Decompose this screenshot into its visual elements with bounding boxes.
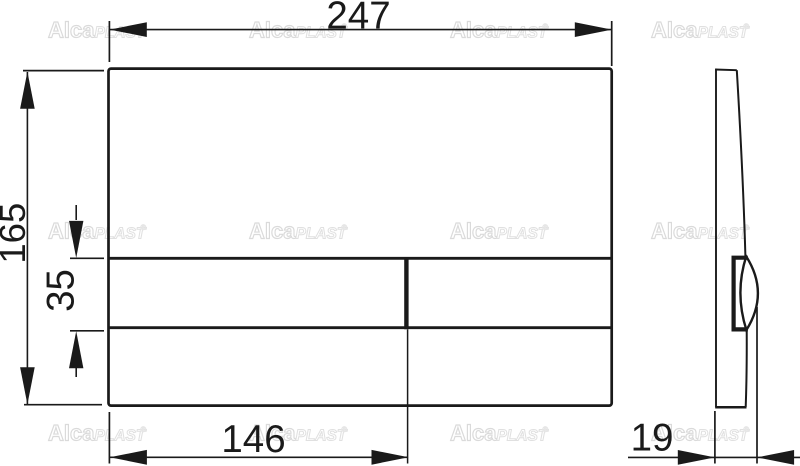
svg-text:146: 146 [221, 418, 285, 461]
svg-text:247: 247 [326, 0, 390, 37]
svg-text:165: 165 [0, 203, 33, 264]
svg-text:35: 35 [39, 269, 82, 312]
svg-text:19: 19 [631, 417, 674, 460]
